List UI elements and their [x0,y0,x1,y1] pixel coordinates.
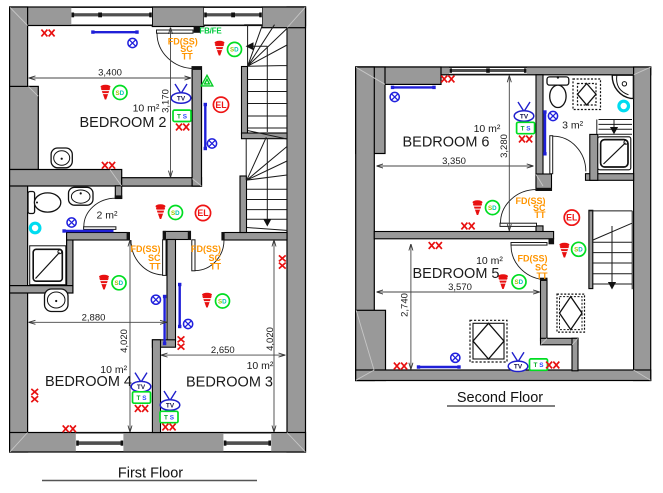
svg-text:TT: TT [150,262,161,272]
svg-text:10 m²: 10 m² [476,255,503,267]
svg-text:10 m²: 10 m² [100,364,127,376]
svg-text:4,020: 4,020 [119,329,130,353]
svg-text:BEDROOM 5: BEDROOM 5 [412,266,499,282]
svg-text:10 m²: 10 m² [474,123,501,135]
svg-text:2 m²: 2 m² [97,209,119,221]
svg-text:10 m²: 10 m² [247,360,274,372]
svg-text:TT: TT [537,271,548,281]
svg-text:3,170: 3,170 [161,89,172,113]
svg-text:Second Floor: Second Floor [457,390,543,406]
svg-text:3,350: 3,350 [442,156,466,167]
svg-text:4,020: 4,020 [265,327,276,351]
svg-text:3,400: 3,400 [98,68,122,79]
svg-text:BEDROOM 6: BEDROOM 6 [402,135,489,151]
svg-text:2,880: 2,880 [82,313,106,324]
svg-text:First Floor: First Floor [118,466,183,482]
svg-text:FB/FE: FB/FE [199,27,222,36]
svg-text:3,280: 3,280 [499,134,510,158]
svg-text:3 m²: 3 m² [562,120,584,132]
svg-text:2,740: 2,740 [400,293,411,317]
svg-text:BEDROOM 2: BEDROOM 2 [79,115,166,131]
svg-text:TT: TT [535,210,546,220]
svg-text:2,650: 2,650 [211,345,235,356]
svg-text:10 m²: 10 m² [133,103,160,115]
svg-text:TT: TT [182,52,193,62]
svg-text:BEDROOM 3: BEDROOM 3 [186,374,273,390]
svg-text:3,570: 3,570 [448,282,472,293]
svg-text:BEDROOM 4: BEDROOM 4 [45,374,132,390]
svg-text:TT: TT [210,262,221,272]
